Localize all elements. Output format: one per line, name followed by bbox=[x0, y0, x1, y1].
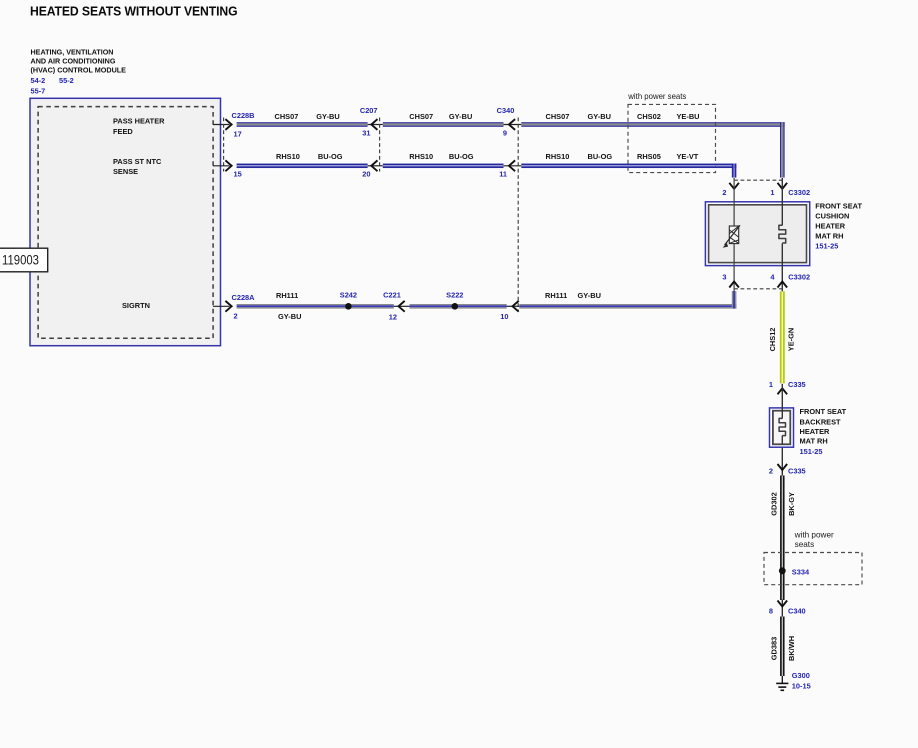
svg-text:119003: 119003 bbox=[2, 253, 39, 269]
svg-text:31: 31 bbox=[362, 128, 370, 137]
svg-text:SENSE: SENSE bbox=[113, 167, 138, 176]
svg-text:YE-VT: YE-VT bbox=[677, 152, 699, 161]
svg-text:GD302: GD302 bbox=[770, 492, 779, 515]
svg-text:PASS HEATER: PASS HEATER bbox=[113, 117, 165, 126]
svg-text:2: 2 bbox=[722, 188, 726, 197]
svg-text:RHS10: RHS10 bbox=[409, 152, 433, 161]
svg-text:S222: S222 bbox=[446, 291, 463, 300]
svg-text:3: 3 bbox=[722, 272, 726, 281]
svg-text:GY-BU: GY-BU bbox=[316, 112, 339, 121]
svg-text:S242: S242 bbox=[340, 291, 357, 300]
svg-text:YE-BU: YE-BU bbox=[677, 112, 700, 121]
svg-text:MAT RH: MAT RH bbox=[815, 231, 843, 240]
svg-text:RHS10: RHS10 bbox=[276, 152, 300, 161]
svg-text:CHS07: CHS07 bbox=[275, 112, 299, 121]
svg-text:C340: C340 bbox=[497, 106, 515, 115]
svg-text:CHS02: CHS02 bbox=[637, 112, 661, 121]
svg-text:SIGRTN: SIGRTN bbox=[122, 301, 150, 310]
svg-text:17: 17 bbox=[234, 129, 242, 138]
svg-text:RHS05: RHS05 bbox=[637, 152, 661, 161]
svg-text:C3302: C3302 bbox=[788, 188, 810, 197]
svg-text:HEATER: HEATER bbox=[815, 221, 845, 230]
svg-text:BU-OG: BU-OG bbox=[449, 152, 474, 161]
svg-text:with power: with power bbox=[794, 531, 834, 540]
svg-text:BK/WH: BK/WH bbox=[787, 636, 796, 661]
svg-text:BU-OG: BU-OG bbox=[318, 152, 343, 161]
svg-text:BACKREST: BACKREST bbox=[800, 417, 842, 426]
svg-text:C340: C340 bbox=[788, 607, 806, 616]
svg-text:CUSHION: CUSHION bbox=[815, 212, 849, 221]
svg-text:8: 8 bbox=[769, 607, 773, 616]
svg-text:15: 15 bbox=[234, 169, 242, 178]
svg-text:seats: seats bbox=[795, 540, 815, 549]
svg-text:HEATED SEATS WITHOUT VENTING: HEATED SEATS WITHOUT VENTING bbox=[30, 4, 238, 19]
svg-text:FEED: FEED bbox=[113, 127, 133, 136]
svg-text:GD383: GD383 bbox=[770, 637, 779, 660]
svg-text:C335: C335 bbox=[788, 380, 806, 389]
svg-text:C221: C221 bbox=[383, 290, 401, 299]
svg-text:YE-GN: YE-GN bbox=[787, 328, 796, 351]
svg-text:GY-BU: GY-BU bbox=[578, 291, 601, 300]
svg-text:151-25: 151-25 bbox=[815, 241, 838, 250]
svg-text:C228A: C228A bbox=[232, 293, 256, 302]
svg-text:HEATER: HEATER bbox=[800, 427, 830, 436]
svg-text:GY-BU: GY-BU bbox=[278, 312, 301, 321]
svg-text:FRONT SEAT: FRONT SEAT bbox=[815, 202, 862, 211]
svg-text:2: 2 bbox=[234, 311, 238, 320]
svg-text:12: 12 bbox=[389, 313, 397, 322]
svg-text:GY-BU: GY-BU bbox=[588, 112, 611, 121]
svg-text:151-25: 151-25 bbox=[800, 447, 823, 456]
svg-text:BK-GY: BK-GY bbox=[787, 492, 796, 516]
svg-text:BU-OG: BU-OG bbox=[588, 152, 613, 161]
svg-text:RH111: RH111 bbox=[545, 291, 567, 300]
svg-text:G300: G300 bbox=[792, 671, 810, 680]
svg-text:FRONT SEAT: FRONT SEAT bbox=[800, 407, 847, 416]
svg-text:11: 11 bbox=[499, 169, 507, 178]
svg-text:C335: C335 bbox=[788, 467, 806, 476]
svg-text:C228B: C228B bbox=[232, 111, 255, 120]
svg-text:10: 10 bbox=[500, 312, 508, 321]
svg-text:RHS10: RHS10 bbox=[546, 152, 570, 161]
svg-text:AND AIR CONDITIONING: AND AIR CONDITIONING bbox=[31, 57, 116, 66]
svg-text:20: 20 bbox=[362, 169, 370, 178]
svg-text:1: 1 bbox=[770, 188, 774, 197]
svg-text:GY-BU: GY-BU bbox=[449, 112, 472, 121]
svg-text:CHS07: CHS07 bbox=[409, 112, 433, 121]
svg-text:2: 2 bbox=[769, 467, 773, 476]
svg-text:1: 1 bbox=[769, 380, 773, 389]
svg-text:CHS12: CHS12 bbox=[768, 328, 777, 352]
svg-text:MAT RH: MAT RH bbox=[800, 437, 828, 446]
svg-text:C207: C207 bbox=[360, 106, 378, 115]
svg-text:RH111: RH111 bbox=[276, 291, 298, 300]
svg-text:55-2: 55-2 bbox=[59, 76, 74, 85]
svg-text:54-2: 54-2 bbox=[31, 76, 46, 85]
svg-text:9: 9 bbox=[503, 128, 507, 137]
svg-text:10-15: 10-15 bbox=[792, 682, 811, 691]
svg-text:C3302: C3302 bbox=[788, 272, 810, 281]
svg-text:HEATING, VENTILATION: HEATING, VENTILATION bbox=[31, 48, 114, 57]
svg-text:CHS07: CHS07 bbox=[546, 112, 570, 121]
svg-text:55-7: 55-7 bbox=[31, 86, 46, 95]
svg-text:with power seats: with power seats bbox=[627, 92, 686, 101]
svg-text:S334: S334 bbox=[792, 568, 810, 577]
svg-text:(HVAC) CONTROL MODULE: (HVAC) CONTROL MODULE bbox=[31, 66, 127, 75]
svg-text:PASS ST NTC: PASS ST NTC bbox=[113, 157, 162, 166]
